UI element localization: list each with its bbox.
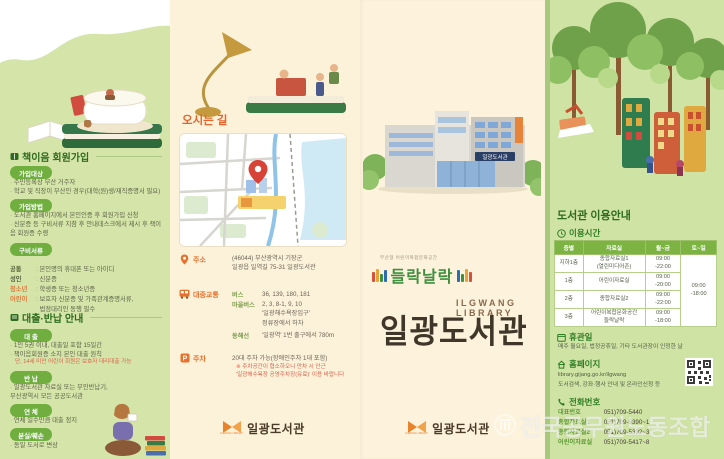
hours-table: 층별 자료실 월~금 토~일 지하1층 종합자료실1 (열린미디어존) 09:0… <box>554 240 717 327</box>
home-icon <box>557 360 566 369</box>
weekend-cell: 09:00 -18:00 <box>681 255 717 327</box>
homepage-title: 홈페이지 <box>569 358 600 370</box>
forest-illustration <box>550 0 724 208</box>
phone-label-general2: 종합자료실2 <box>558 428 602 438</box>
panel-directions: 오시는 길 <box>170 0 360 459</box>
qr-code <box>685 358 713 386</box>
weekday-cell: 09:00 -20:00 <box>645 273 681 291</box>
library-emblem-icon: ILGWANG LIBRARY <box>220 421 243 436</box>
clock-icon <box>557 229 566 238</box>
phone-label-children: 어린이자료실 <box>558 438 602 448</box>
col-room: 자료실 <box>583 241 645 255</box>
panel-membership: 책이음 회원가입 가입대상 주민등록상 부산 거주자 학교 및 직장이 부산인 … <box>0 0 170 459</box>
loan-title: 대출·반납 안내 <box>22 310 83 325</box>
footer-logo-text: 일광도서관 <box>432 420 490 437</box>
footer-logo-text: 일광도서관 <box>247 420 305 437</box>
cup-on-book-illustration <box>20 80 165 150</box>
weekday-cell: 09:00 -18:00 <box>645 309 681 327</box>
phone-label-main: 대표번호 <box>558 408 602 418</box>
address-value: (46044) 부산광역시 기장군 일광읍 일역길 75-31 일광도서관 <box>232 254 354 273</box>
loan-title-row: 대출·반납 안내 <box>10 310 162 325</box>
title-rule <box>90 317 162 318</box>
doc-separator: : <box>36 296 38 303</box>
weekday-cell: 09:00 -22:00 <box>645 291 681 309</box>
phone-row-main: 대표번호 051)709-5440 <box>558 408 642 418</box>
room-cell: 종합자료실2 <box>583 291 645 309</box>
join-method-line2: 신분증 등 구비서류 지참 후 안내데스크에서 제시 후 책이음 회원증 수령 <box>10 220 162 238</box>
parking-icon: P <box>180 353 190 363</box>
transit-label: 대중교통 <box>193 290 227 300</box>
loan-line2: 책이음회원증 소지 본인 대출 원칙 <box>10 350 162 359</box>
pin-icon <box>180 254 189 265</box>
table-row: 지하1층 종합자료실1 (열린미디어존) 09:00 -22:00 09:00 … <box>555 255 717 273</box>
col-weekend: 토~일 <box>681 241 717 255</box>
building-sign-text: 일광도서관 <box>482 153 507 161</box>
hours-title: 이용시간 <box>569 227 600 239</box>
library-building-photo: 일광도서관 <box>363 95 541 200</box>
documents-badge: 구비서류 <box>10 243 52 256</box>
address-label: 주소 <box>193 255 227 265</box>
location-map <box>179 133 347 247</box>
wave-decoration <box>0 0 170 72</box>
phone-title: 전화번호 <box>569 396 600 408</box>
footer-logo-caption: ILGWANG LIBRARY <box>405 433 428 436</box>
floor-cell: 3층 <box>555 309 584 327</box>
panel-brand: 일광도서관 부산형 어린이복합문화공간 들락날락 ILGWANG LIBRARY… <box>360 0 545 459</box>
phone-row-general2: 종합자료실2 051)709-5392~3 <box>558 428 649 438</box>
footer-logo-directions: ILGWANG LIBRARY 일광도서관 <box>220 420 305 437</box>
phone-row-general1: 종합자료실1 051)709-5390~1 <box>558 418 649 428</box>
bus-icon <box>179 289 190 299</box>
col-floor: 층별 <box>555 241 584 255</box>
join-target-line2: 학교 및 직장이 부산인 경우(대학(원)생/재직증명서 필요) <box>10 187 162 196</box>
transit-rail-value: '일광역' 1번 출구에서 780m <box>262 331 354 340</box>
room-cell: 종합자료실1 (열린미디어존) <box>583 255 645 273</box>
transit-rail-label: 동해선 <box>232 331 258 340</box>
brand-name-text: 들락날락 <box>391 263 454 287</box>
room-cell: 어린이자료실 <box>583 273 645 291</box>
phone-label-general1: 종합자료실1 <box>558 418 602 428</box>
lost-badge: 분실/훼손 <box>10 428 52 441</box>
calendar-icon <box>557 333 566 342</box>
transit-village-label: 마을버스 <box>232 300 258 309</box>
library-brochure: 책이음 회원가입 가입대상 주민등록상 부산 거주자 학교 및 직장이 부산인 … <box>0 0 724 459</box>
panel-usage-info: 도서관 이용안내 이용시간 층별 자료실 월~금 토~일 지하1층 종합자료실1… <box>545 0 724 459</box>
map-graphic <box>180 134 346 246</box>
homepage-url: library.gijang.go.kr/ilgwang <box>558 371 676 380</box>
closed-title: 휴관일 <box>569 331 592 343</box>
phone-icon <box>557 398 566 407</box>
phone-value-children: 051)709-5417~8 <box>604 439 650 446</box>
loan-book-icon <box>10 313 19 322</box>
lamp-and-readers-illustration <box>188 22 348 118</box>
transit-bus-label: 버스 <box>232 290 258 299</box>
room-cell: 어린이복합문화공간 들락날락 <box>583 309 645 327</box>
hours-heading: 이용시간 <box>557 227 600 239</box>
usage-info-title: 도서관 이용안내 <box>557 207 631 223</box>
floor-cell: 1층 <box>555 273 584 291</box>
phone-value-main: 051)709-5440 <box>604 409 643 416</box>
transit-bus-value: 36, 139, 180, 181 <box>262 290 354 299</box>
phone-value-general1: 051)709-5390~1 <box>604 419 650 426</box>
floor-cell: 지하1층 <box>555 255 584 273</box>
reading-woman-illustration <box>95 396 168 458</box>
membership-title: 책이음 회원가입 <box>22 149 89 164</box>
hours-header-row: 층별 자료실 월~금 토~일 <box>555 241 717 255</box>
footer-logo-caption: ILGWANG LIBRARY <box>220 433 243 436</box>
loan-note: 단, 14세 미만 어린이 회원은 보호자 대리대출 가능 <box>15 359 165 367</box>
book-icon <box>10 152 19 161</box>
parking-value: 20대 주차 가능(장애인주차 1대 포함) <box>232 354 354 363</box>
brand-name: 들락날락 <box>372 263 472 287</box>
weekday-cell: 09:00 -22:00 <box>645 255 681 273</box>
brand-small-text: 부산형 어린이복합문화공간 <box>380 255 437 261</box>
homepage-desc: 도서검색, 강좌·행사 안내 및 온라인신청 등 <box>558 381 676 390</box>
footer-logo-brand: ILGWANG LIBRARY 일광도서관 <box>405 420 490 437</box>
title-rule <box>96 156 162 157</box>
membership-title-row: 책이음 회원가입 <box>10 149 162 164</box>
homepage-heading: 홈페이지 <box>557 358 600 370</box>
col-weekday: 월~금 <box>645 241 681 255</box>
svg-text:P: P <box>183 356 188 363</box>
closed-heading: 휴관일 <box>557 331 592 343</box>
phone-value-general2: 051)709-5392~3 <box>604 429 650 436</box>
parking-note: ※ 주차공간이 협소하오니 만차 시 인근 '일광해수욕장 공영주차장(유료)'… <box>236 364 354 380</box>
phone-row-children: 어린이자료실 051)709-5417~8 <box>558 438 649 448</box>
parking-label: 주차 <box>193 354 227 364</box>
transit-village-value: 2, 3, 8-1, 9, 10 '일광해수욕장입구' 정류장에서 하차 <box>262 300 354 328</box>
brand-bars-left-icon <box>372 269 387 282</box>
directions-title: 오시는 길 <box>182 112 228 128</box>
closed-line: 매주 월요일, 법정공휴일, 기타 도서관장이 인정한 날 <box>558 343 718 352</box>
floor-cell: 2층 <box>555 291 584 309</box>
library-emblem-icon: ILGWANG LIBRARY <box>405 421 428 436</box>
brand-bars-right-icon <box>457 269 472 282</box>
logo-korean: 일광도서관 <box>380 305 528 352</box>
phone-heading: 전화번호 <box>557 396 600 408</box>
doc-label-child: 어린이 <box>10 295 36 304</box>
